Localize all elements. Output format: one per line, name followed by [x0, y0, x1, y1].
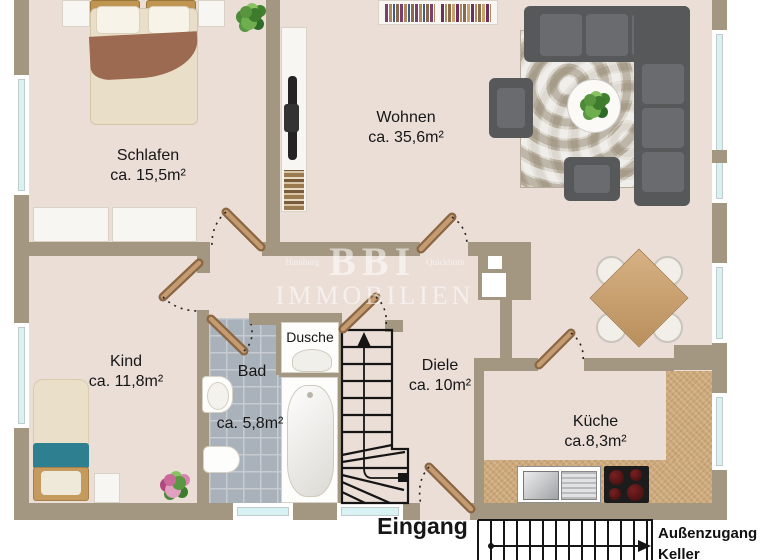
wall-segment [470, 503, 727, 520]
room-name: Wohnen [352, 108, 460, 128]
room-label-bad: Bad [226, 362, 278, 382]
blanket [33, 443, 89, 469]
wall-segment [29, 242, 208, 256]
room-area: ca. 35,6m² [352, 128, 460, 148]
room-area: ca.8,3m² [548, 432, 643, 452]
room-name: Küche [548, 412, 643, 432]
bed-foot [41, 471, 81, 495]
shelf-books [284, 170, 304, 210]
plant-icon [240, 6, 252, 18]
dresser [33, 207, 109, 242]
shower-tray [292, 349, 332, 372]
kitchen-sink [517, 466, 601, 503]
room-label-kueche: Küche ca.8,3m² [548, 412, 643, 451]
room-label-diele: Diele ca. 10m² [400, 356, 480, 395]
room-area: ca. 11,8m² [72, 372, 180, 392]
kitchen-counter-right [666, 371, 712, 463]
wall-segment [674, 345, 712, 370]
books [441, 4, 491, 22]
room-label-schlafen: Schlafen ca. 15,5m² [92, 146, 204, 185]
cellar-direction-arrow [488, 540, 651, 552]
watermark: Hamburg BBI Quickborn IMMOBILIEN [270, 238, 480, 311]
coffee-table [567, 79, 621, 133]
dresser [112, 207, 197, 242]
room-name: Schlafen [92, 146, 204, 166]
tub-basin [287, 385, 334, 497]
armchair [489, 78, 533, 138]
double-bed [88, 0, 200, 126]
cellar-access-line2: Keller [658, 544, 766, 560]
kid-bed [31, 377, 92, 503]
toilet [203, 446, 240, 473]
sink-basin [207, 382, 229, 410]
nightstand [94, 473, 120, 503]
window-glass [715, 33, 724, 200]
wall-segment [385, 320, 403, 332]
shower: Dusche [281, 322, 339, 373]
window-glass [17, 78, 26, 192]
stove [604, 466, 649, 503]
shaft-box [488, 256, 502, 269]
room-name: Bad [226, 362, 278, 382]
flowers-icon [164, 474, 176, 486]
burner [627, 484, 644, 501]
bookshelf [378, 0, 498, 25]
burner [609, 470, 624, 485]
bathtub [281, 377, 338, 503]
room-label-wohnen: Wohnen ca. 35,6m² [352, 108, 460, 147]
sink-basin [523, 471, 559, 500]
pillow [148, 6, 190, 34]
window-glass [236, 506, 290, 517]
window-schlafen [14, 75, 29, 195]
sofa-right [634, 6, 690, 206]
sink-drainboard [561, 471, 597, 500]
window-bad [233, 503, 293, 520]
floorplan: Dusche [0, 0, 768, 560]
window-mullion [712, 150, 727, 163]
window-kind [14, 323, 29, 428]
watermark-brand-sub: IMMOBILIEN [270, 281, 480, 311]
window-kueche [712, 393, 727, 470]
window-glass [715, 266, 724, 340]
watermark-city-right: Quickborn [426, 257, 465, 267]
window-wohnen [712, 30, 727, 203]
window-glass [715, 396, 724, 467]
pillow [96, 6, 140, 34]
shower-label: Dusche [282, 329, 338, 346]
outside-cellar-stair [478, 520, 652, 560]
window-dining [712, 263, 727, 343]
wall-segment [584, 358, 674, 371]
cellar-access-label: Außenzugang Keller [658, 523, 766, 560]
cellar-access-line1: Außenzugang [658, 523, 766, 544]
burner [630, 469, 642, 481]
room-area: ca. 10m² [400, 376, 480, 396]
wall-segment [478, 358, 538, 371]
sink [202, 376, 233, 413]
room-name: Kind [72, 352, 180, 372]
tub-drain [307, 392, 313, 398]
room-area: ca. 15,5m² [92, 166, 204, 186]
room-area-bad: ca. 5,8m² [208, 414, 292, 434]
watermark-city-left: Hamburg [285, 257, 319, 267]
wardrobe [62, 0, 90, 27]
footstool [564, 157, 620, 201]
room-label-kind: Kind ca. 11,8m² [72, 352, 180, 391]
wall-segment [197, 242, 210, 273]
watermark-brand: BBI [329, 238, 416, 285]
room-area: ca. 5,8m² [208, 414, 292, 434]
burner [609, 488, 621, 500]
books [385, 4, 435, 22]
wall-segment [266, 0, 280, 256]
room-name: Diele [400, 356, 480, 376]
tv-mount [284, 104, 299, 132]
entrance-label: Eingang [370, 512, 475, 540]
window-glass [17, 326, 26, 425]
shaft-box [482, 273, 506, 297]
wardrobe [198, 0, 225, 27]
plant-icon [584, 94, 596, 106]
